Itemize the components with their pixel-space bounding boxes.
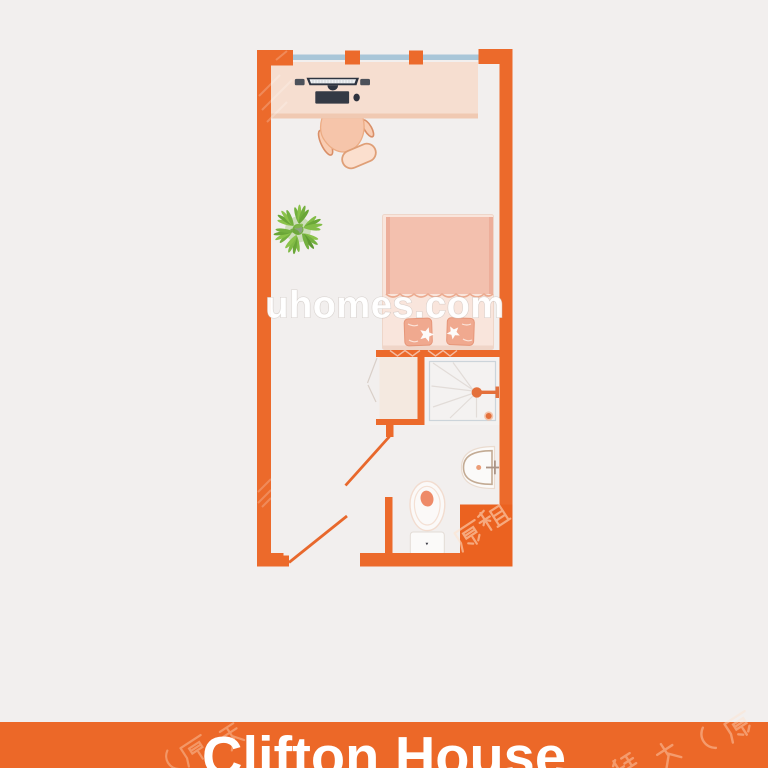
svg-text:Clifton House: Clifton House bbox=[202, 725, 566, 768]
svg-text:uhomes.com: uhomes.com bbox=[265, 285, 504, 327]
